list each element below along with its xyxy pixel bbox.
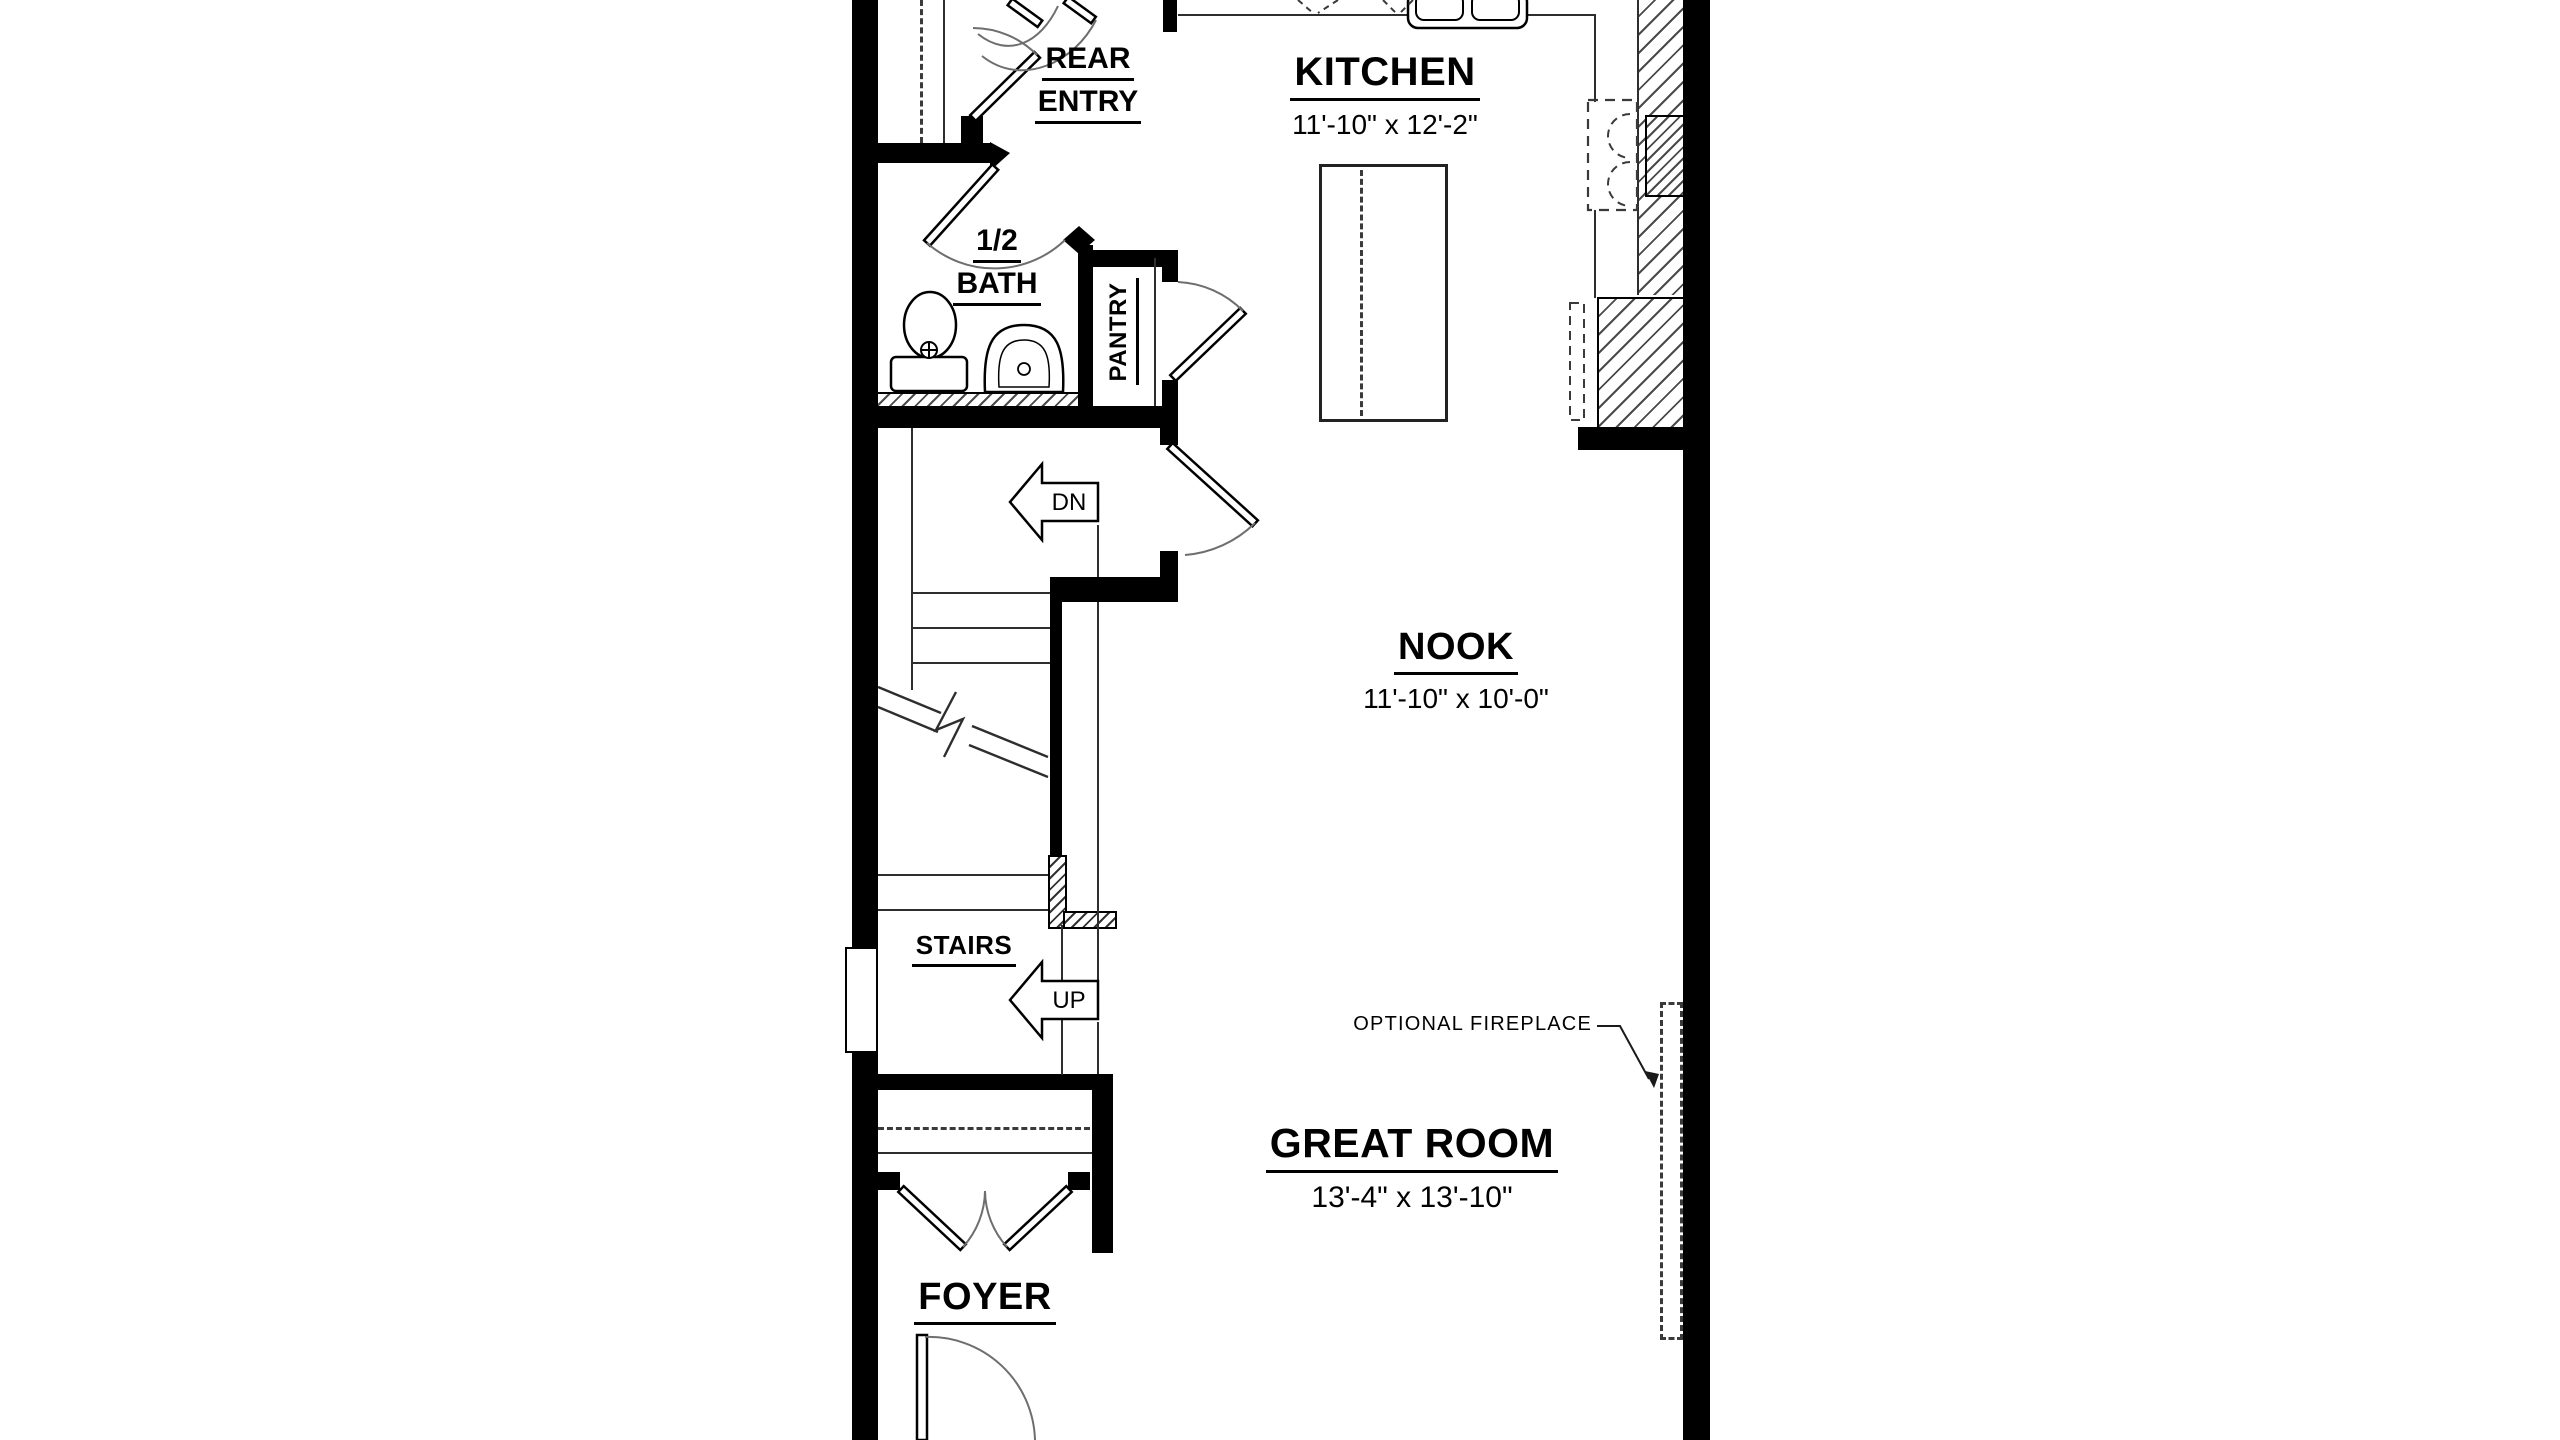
- fridge-dashed-edge: [1570, 303, 1584, 420]
- floor-plan-canvas: KITCHEN 11'-10" x 12'-2" REAR ENTRY 1/2 …: [0, 0, 2560, 1440]
- fireplace-leader-arrowhead: [1645, 1071, 1659, 1088]
- room-label-rear-entry: REAR ENTRY: [1008, 42, 1168, 128]
- top-door-leaf: [1008, 0, 1043, 27]
- kitchen-sink: [1408, 0, 1527, 28]
- pantry-door-swing-arc: [1178, 282, 1243, 311]
- down-arrow-text: DN: [1044, 489, 1094, 517]
- half-bath-label-line2: BATH: [953, 267, 1040, 306]
- room-label-kitchen: KITCHEN 11'-10" x 12'-2": [1265, 50, 1505, 141]
- nook-label: NOOK: [1394, 626, 1518, 675]
- nook-dims: 11'-10" x 10'-0": [1363, 683, 1549, 715]
- nook-door-leaf: [1167, 443, 1258, 526]
- foyer-closet-door-leaf-left: [898, 1186, 966, 1250]
- half-bath-label-line1: 1/2: [973, 224, 1021, 263]
- optional-fireplace-note: OPTIONAL FIREPLACE: [1352, 1013, 1592, 1036]
- great-room-dims: 13'-4" x 13'-10": [1311, 1181, 1512, 1215]
- plan-linework: [0, 0, 2560, 1440]
- pantry-label: PANTRY: [1105, 279, 1139, 386]
- kitchen-dims: 11'-10" x 12'-2": [1292, 109, 1478, 141]
- foyer-closet-door-leaf-right: [1004, 1186, 1072, 1250]
- optional-oven-outline: [1588, 100, 1637, 210]
- bath-sink: [985, 325, 1064, 392]
- optional-oven-door-arc: [1608, 162, 1630, 206]
- room-label-stairs: STAIRS: [904, 930, 1024, 967]
- toilet-tank: [891, 357, 967, 391]
- foyer-label: FOYER: [914, 1276, 1055, 1325]
- upper-cabinet-dashed-mark: [1298, 0, 1338, 13]
- closet-door-swing-arc: [963, 1191, 985, 1247]
- stair-break-line: [878, 687, 1048, 757]
- optional-oven-door-arc: [1608, 114, 1630, 158]
- stairs-label: STAIRS: [912, 930, 1016, 967]
- stair-break-zigzag: [936, 692, 963, 757]
- room-label-pantry: PANTRY: [1102, 257, 1142, 407]
- front-door-swing-arc: [925, 1337, 1035, 1440]
- great-room-label: GREAT ROOM: [1266, 1120, 1558, 1173]
- up-arrow-text: UP: [1044, 987, 1094, 1015]
- rear-entry-label-line2: ENTRY: [1035, 85, 1142, 124]
- kitchen-label: KITCHEN: [1290, 50, 1479, 101]
- room-label-foyer: FOYER: [885, 1276, 1085, 1325]
- top-door-leaf: [1064, 0, 1096, 23]
- closet-door-swing-arc: [985, 1191, 1007, 1247]
- front-door-leaf: [917, 1335, 927, 1440]
- fireplace-leader-line: [1597, 1026, 1649, 1079]
- room-label-half-bath: 1/2 BATH: [917, 224, 1077, 310]
- room-label-nook: NOOK 11'-10" x 10'-0": [1336, 626, 1576, 715]
- pantry-door-leaf: [1170, 308, 1246, 381]
- room-label-great-room: GREAT ROOM 13'-4" x 13'-10": [1262, 1120, 1562, 1215]
- nook-door-swing-arc: [1185, 523, 1255, 555]
- rear-entry-label-line1: REAR: [1042, 42, 1133, 81]
- stair-break-line: [878, 707, 1048, 777]
